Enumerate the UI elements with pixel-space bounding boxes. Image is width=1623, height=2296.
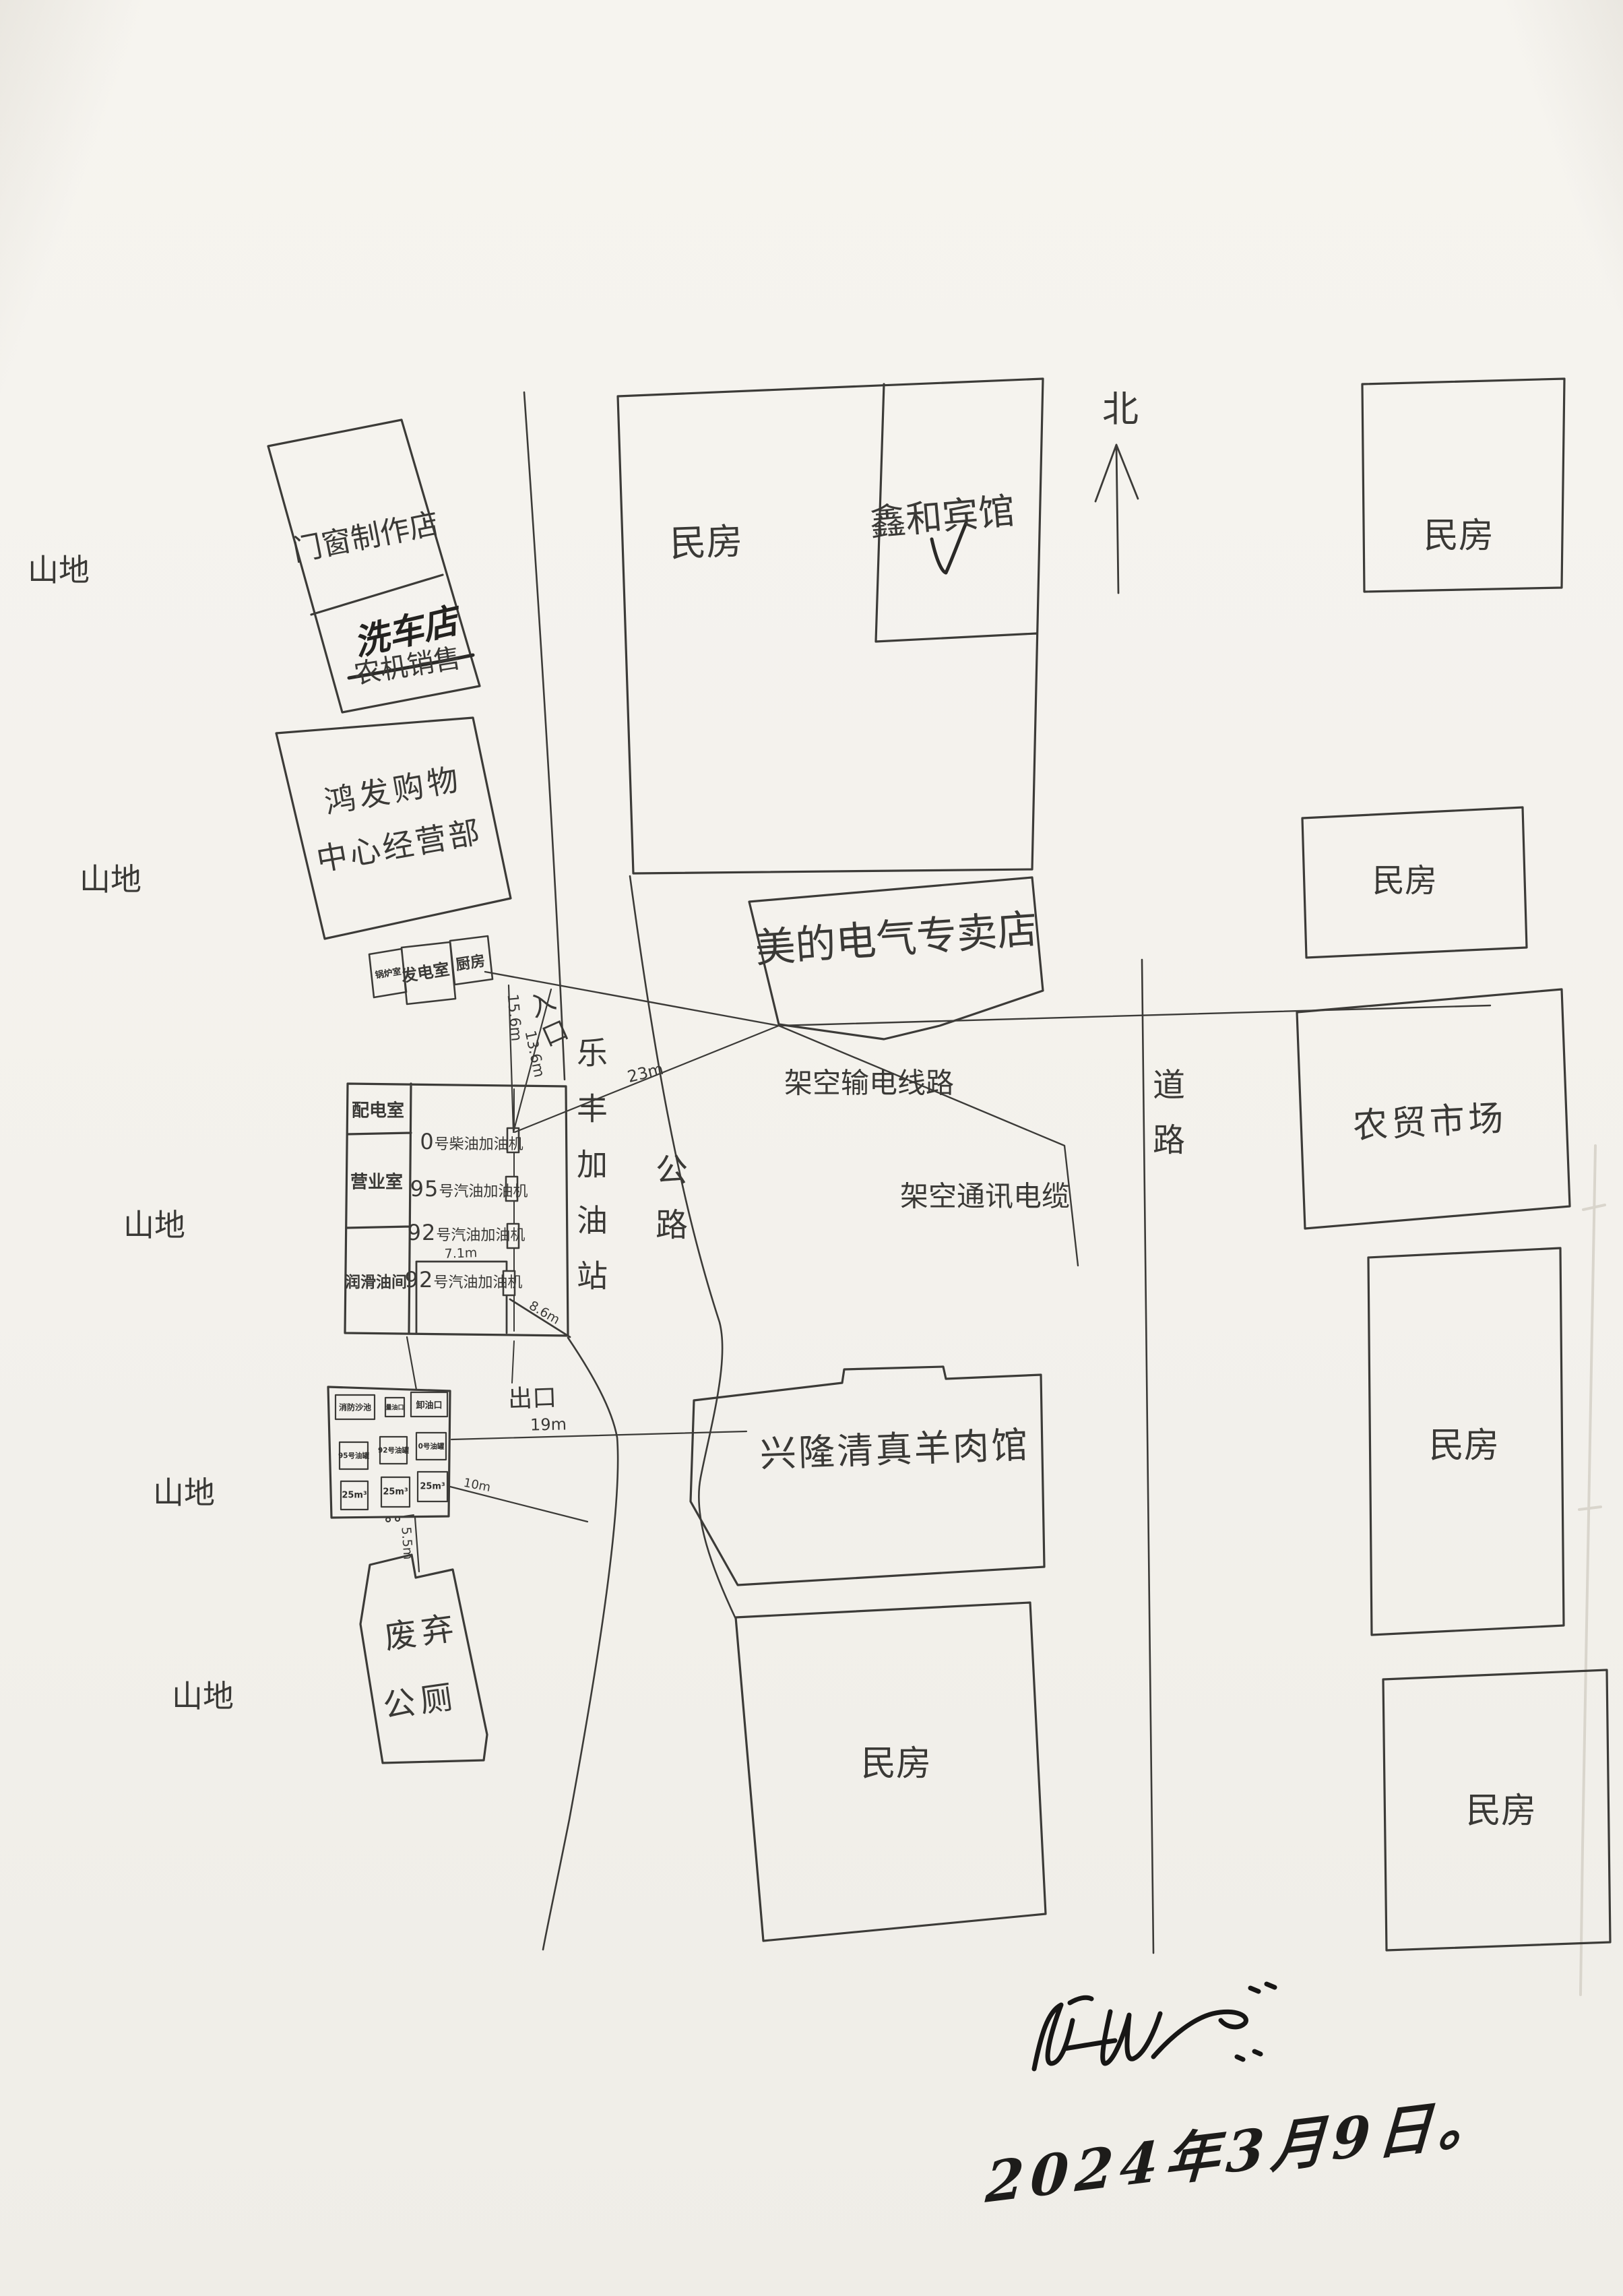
dispenser-95-number: 95: [410, 1176, 439, 1202]
residence-hotel-outline: [618, 379, 1043, 873]
highway-label: 公路: [645, 1152, 692, 1262]
dispenser-92b-number: 92: [405, 1267, 434, 1293]
residence-label-rightsmall: 民房: [1372, 854, 1437, 901]
dispenser-0-text: 号柴油加油机: [435, 1136, 523, 1153]
mountain-label-4: 山地: [153, 1468, 215, 1513]
mountain-label-5: 山地: [172, 1672, 234, 1716]
measure-5-5m: 5.5m: [398, 1526, 415, 1560]
farmers-market-label: 农贸市场: [1351, 1090, 1508, 1148]
station-name-label: 乐丰加油站: [568, 1036, 612, 1315]
lube-room-label: 润滑油间: [345, 1269, 407, 1292]
signature-scribble: [1034, 1984, 1275, 2069]
residence-label-bottomright: 民房: [1466, 1782, 1536, 1833]
dispenser-95-text: 号汽油加油机: [439, 1183, 528, 1200]
dispenser-92a-text: 号汽油加油机: [436, 1227, 525, 1244]
office-room-label: 营业室: [350, 1169, 403, 1193]
scanned-site-plan: 山地 山地 山地 山地 山地 北 门窗制作店 洗车店 农机销售 鸿发购物 中心经…: [0, 0, 1623, 2296]
station-exit-label: 出口: [507, 1378, 557, 1415]
dispenser-label-92a: 92号汽油加油机: [408, 1220, 526, 1245]
mountain-label-2: 山地: [79, 855, 141, 900]
tank-92-label: 92号油罐: [378, 1446, 409, 1456]
power-line: [485, 972, 1490, 1026]
tank-gauge-port-label: 量油口: [385, 1403, 404, 1412]
power-line-label: 架空输电线路: [784, 1061, 954, 1102]
highway-left-edge: [524, 392, 565, 1080]
tank-25m3-label-1: 25m³: [342, 1491, 367, 1501]
dispenser-label-0: 0号柴油加油机: [420, 1129, 523, 1154]
dispenser-label-95: 95号汽油加油机: [410, 1176, 528, 1202]
mountain-label-3: 山地: [123, 1201, 185, 1245]
lamb-restaurant-label: 兴隆清真羊肉馆: [759, 1415, 1030, 1478]
measure-7-1m: 7.1m: [444, 1245, 477, 1262]
kitchen-label: 厨房: [454, 949, 486, 974]
north-arrow: [1095, 445, 1138, 593]
dispenser-92b-text: 号汽油加油机: [433, 1274, 522, 1291]
yard-connectors: [407, 1337, 746, 1572]
dispenser-0-number: 0: [420, 1129, 434, 1154]
lamb-restaurant-outline: [691, 1367, 1044, 1585]
tank-unload-port-label: 卸油口: [416, 1398, 442, 1411]
dispenser-92a-number: 92: [408, 1220, 437, 1245]
residence-label-center: 民房: [669, 511, 744, 567]
site-plan-drawing: [0, 0, 1623, 2296]
tank-95-label: 95号油罐: [338, 1451, 369, 1461]
paper-crease: [1579, 1146, 1605, 1995]
mountain-label-1: 山地: [28, 546, 90, 590]
tank-0-label: 0号油罐: [418, 1441, 445, 1452]
tank-25m3-label-2: 25m³: [383, 1487, 408, 1497]
abandoned-toilet-outline: [360, 1555, 487, 1763]
residence-label-bottomcenter: 民房: [861, 1735, 931, 1786]
tank-25m3-label-3: 25m³: [420, 1482, 445, 1492]
power-dist-room-label: 配电室: [352, 1097, 404, 1122]
dispenser-label-92b: 92号汽油加油机: [405, 1267, 523, 1293]
residence-label-topright: 民房: [1424, 507, 1494, 558]
north-label: 北: [1102, 379, 1139, 433]
measure-19m: 19m: [530, 1415, 567, 1435]
road-label: 道路: [1142, 1067, 1189, 1177]
residence-label-righttall: 民房: [1429, 1417, 1499, 1468]
topright-residence-outline: [1362, 379, 1564, 592]
telecom-cable-label: 架空通讯电缆: [900, 1174, 1070, 1215]
tank-fire-sand-label: 消防沙池: [339, 1402, 371, 1413]
